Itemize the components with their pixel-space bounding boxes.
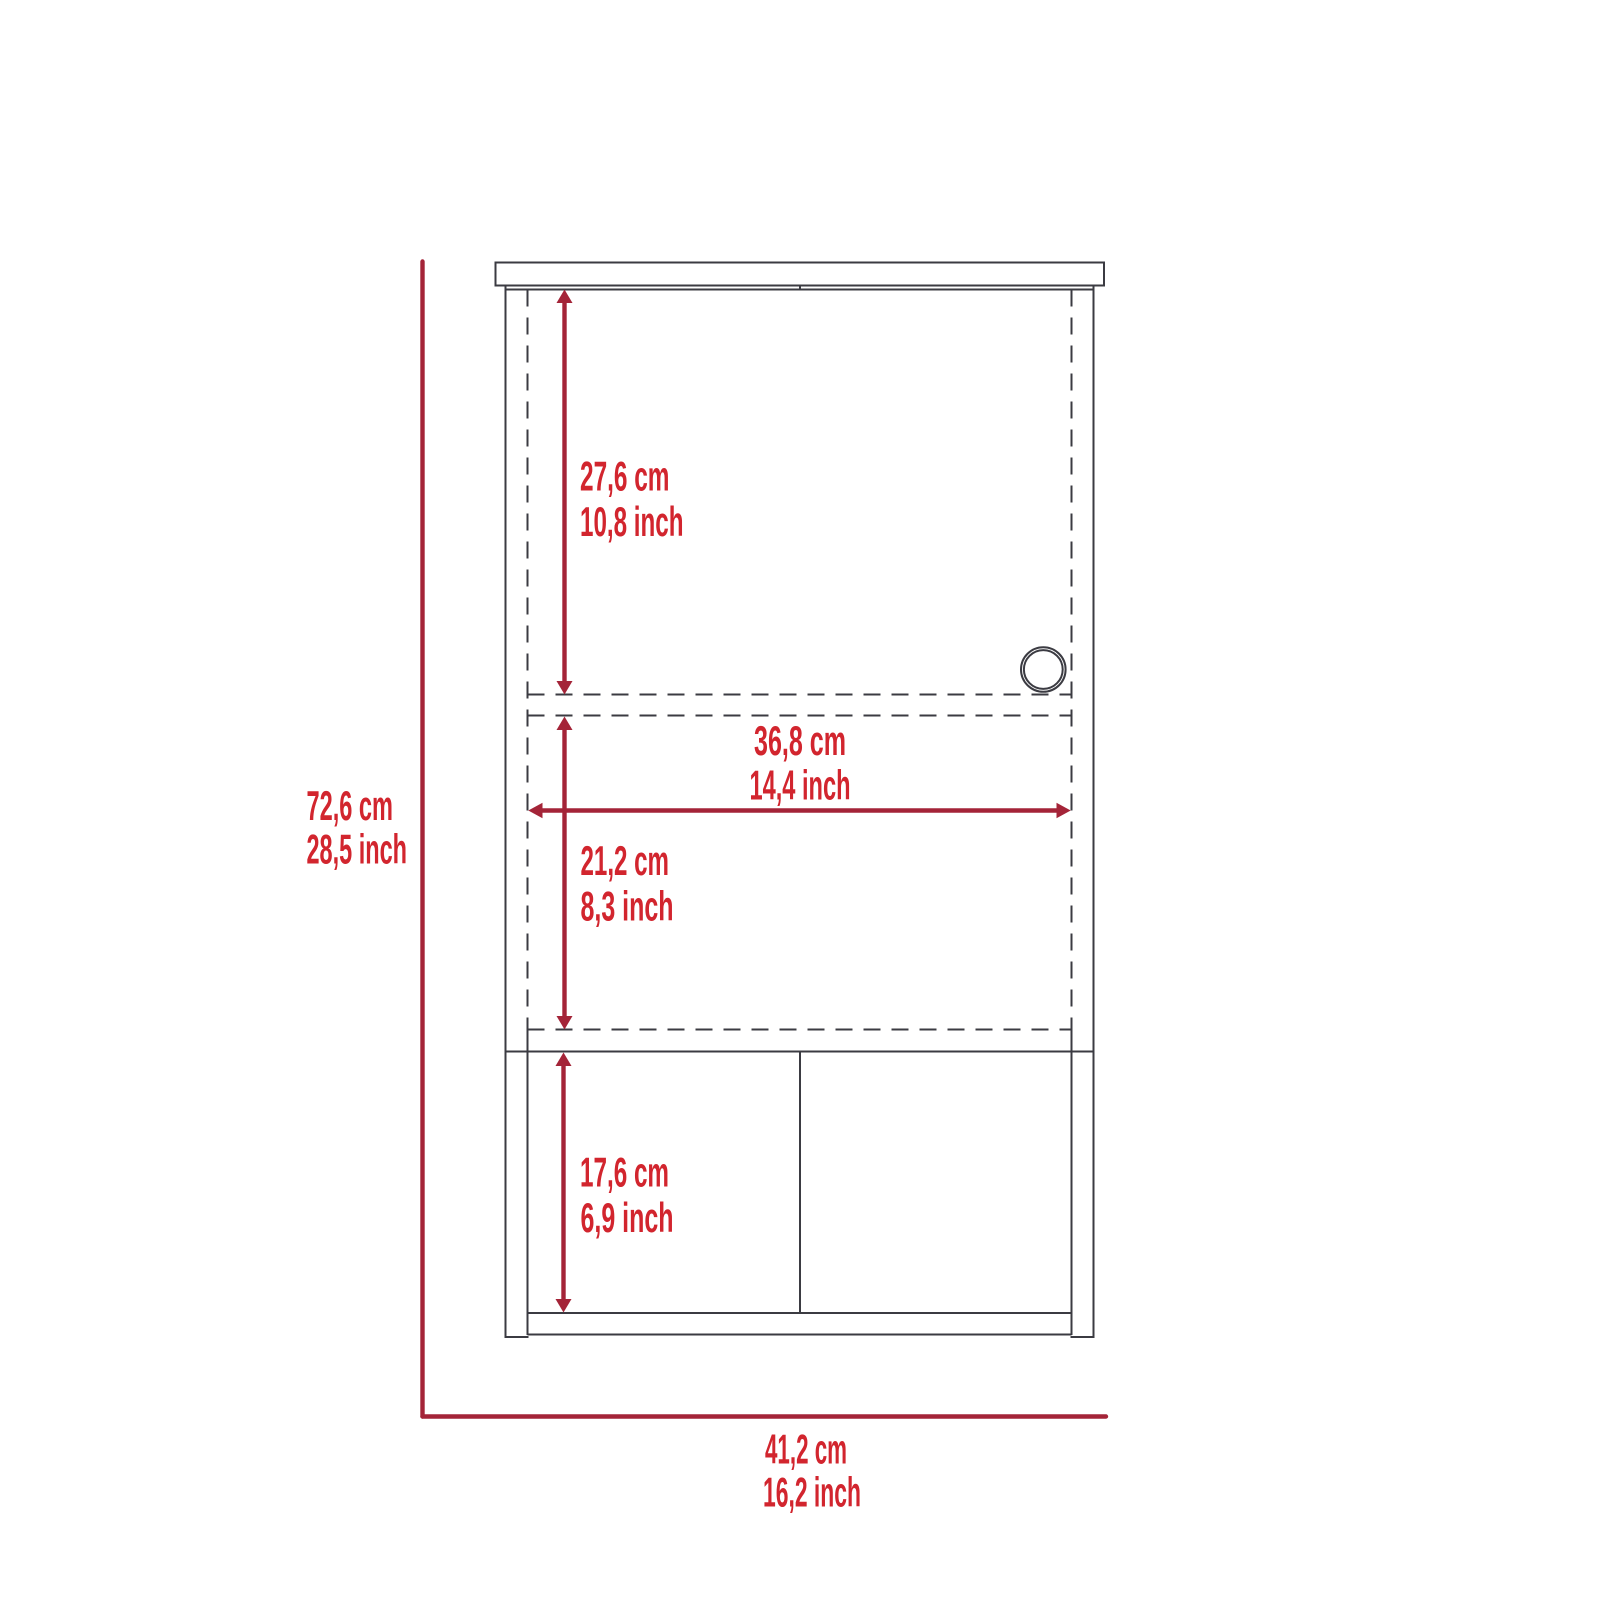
- svg-text:28,5 inch: 28,5 inch: [307, 826, 408, 873]
- svg-text:8,3 inch: 8,3 inch: [581, 883, 674, 930]
- svg-text:14,4 inch: 14,4 inch: [750, 762, 851, 809]
- svg-text:72,6 cm: 72,6 cm: [307, 782, 394, 829]
- svg-text:41,2 cm: 41,2 cm: [765, 1426, 847, 1473]
- svg-text:36,8 cm: 36,8 cm: [754, 717, 846, 764]
- svg-text:6,9 inch: 6,9 inch: [581, 1194, 674, 1241]
- svg-text:10,8 inch: 10,8 inch: [580, 498, 684, 545]
- svg-text:21,2 cm: 21,2 cm: [581, 837, 670, 884]
- svg-text:16,2 inch: 16,2 inch: [763, 1469, 861, 1516]
- svg-text:27,6 cm: 27,6 cm: [580, 453, 670, 500]
- svg-text:17,6 cm: 17,6 cm: [580, 1149, 669, 1196]
